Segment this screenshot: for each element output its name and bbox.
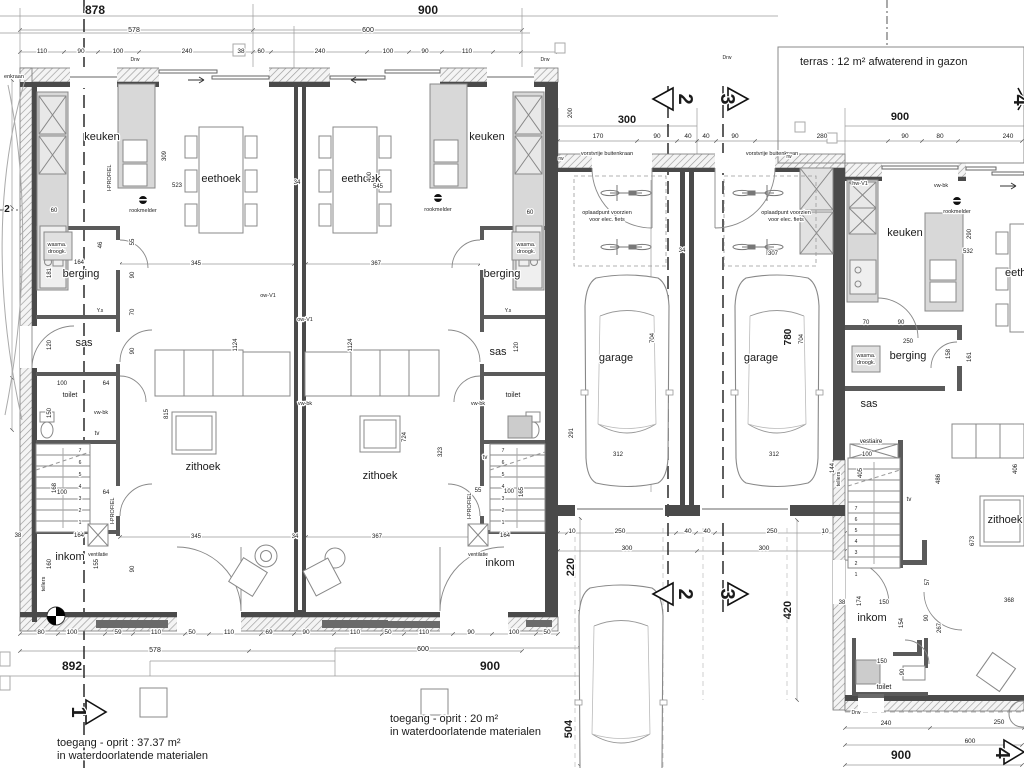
toegang-left-note-2: in waterdoorlatende materialen xyxy=(57,750,208,762)
plan-label: 240 xyxy=(315,48,326,55)
plan-label: ow-V1 xyxy=(297,317,313,323)
plan-label: 368 xyxy=(1004,598,1015,604)
plan-label: 100 xyxy=(57,490,68,496)
plan-label: 240 xyxy=(1003,133,1014,140)
plan-label: 300 xyxy=(622,545,633,552)
room-berging-2: berging xyxy=(484,268,521,280)
plan-label: 90 xyxy=(302,629,310,636)
dim-900-right: 900 xyxy=(891,748,911,762)
plan-label: vw-bk xyxy=(471,401,486,407)
toegang-mid-note-1: toegang - oprit : 20 m² xyxy=(390,713,499,725)
plan-label: 2 xyxy=(855,561,858,567)
plan-label: 2 xyxy=(79,508,82,514)
plan-label: 90 xyxy=(130,271,136,278)
plan-label: 100 xyxy=(113,48,124,55)
plan-label: 69 xyxy=(265,629,273,636)
plan-label: 200 xyxy=(568,107,574,118)
dim-892: 892 xyxy=(62,659,82,673)
vehicles xyxy=(574,176,823,768)
plan-label: 312 xyxy=(613,452,624,458)
plan-label: 40 xyxy=(703,528,711,535)
plan-label: 300 xyxy=(759,545,770,552)
floorplan-canvas: terras : 12 m² afwaterend in gazon toega… xyxy=(0,0,1024,768)
plan-label: 60 xyxy=(257,48,265,55)
plan-label: 161 xyxy=(967,351,973,362)
plan-label: 59 xyxy=(114,629,122,636)
room-eethoek-3: eethoek xyxy=(1005,267,1024,279)
plan-label: 80 xyxy=(37,629,45,636)
plan-label: 70 xyxy=(130,308,136,315)
plan-label: ventilatie xyxy=(88,552,108,558)
plan-label: 40 xyxy=(684,528,692,535)
plan-label: 323 xyxy=(438,446,444,457)
plan-label: ventilatie xyxy=(468,552,488,558)
plan-label: Drw xyxy=(852,710,861,716)
plan-label: 600 xyxy=(965,738,976,745)
plan-label: 250 xyxy=(994,719,1005,726)
plan-label: 90 xyxy=(130,347,136,354)
room-garage-1: garage xyxy=(599,352,633,364)
plan-label: droogk. xyxy=(857,360,876,366)
plan-label: 5 xyxy=(79,472,82,478)
plan-label: 155 xyxy=(94,558,100,569)
plan-label: enkraan xyxy=(4,74,24,80)
plan-label: 164 xyxy=(500,533,511,539)
plan-label: 815 xyxy=(164,408,170,419)
plan-label: 150 xyxy=(47,407,53,418)
plan-label: Drw xyxy=(131,57,140,63)
room-berging-1: berging xyxy=(63,268,100,280)
plan-label: 110 xyxy=(462,48,473,55)
plan-label: 60 xyxy=(51,208,58,214)
dim-878: 878 xyxy=(85,3,105,17)
room-sas-2: sas xyxy=(489,346,507,358)
plan-label: 38 xyxy=(839,600,846,606)
room-keuken-3: keuken xyxy=(887,227,922,239)
plan-label: 150 xyxy=(879,600,890,606)
plan-label: 4 xyxy=(855,539,858,545)
stairs-unit1 xyxy=(36,444,90,532)
plan-label: 70 xyxy=(863,320,870,326)
plan-label: 174 xyxy=(857,595,863,606)
plan-label: 110 xyxy=(350,629,361,636)
plan-label: wasma. xyxy=(856,353,876,359)
car-driveway xyxy=(575,585,667,768)
plan-label: 60 xyxy=(527,210,534,216)
plan-label: 3 xyxy=(855,550,858,556)
plan-label: 240 xyxy=(881,720,892,727)
plan-label: 345 xyxy=(191,534,202,540)
plan-label: 6 xyxy=(855,517,858,523)
plan-label: I-PROFIEL xyxy=(467,493,473,520)
plan-label: 50 xyxy=(188,629,196,636)
plan-label: vw-bk xyxy=(934,183,949,189)
plan-label: 7 xyxy=(502,448,505,454)
plan-label: 90 xyxy=(731,133,739,140)
plan-label: 144 xyxy=(830,462,836,473)
plan-label: 90 xyxy=(653,133,661,140)
plan-label: 164 xyxy=(74,260,85,266)
plan-label: 64 xyxy=(103,490,110,496)
plan-label: 578 xyxy=(149,647,161,654)
plan-label: 290 xyxy=(967,228,973,239)
plan-label: 38 xyxy=(237,48,245,55)
plan-label: 100 xyxy=(504,489,515,495)
plan-label: 100 xyxy=(509,629,520,636)
plan-label: 3 xyxy=(79,496,82,502)
plan-label: 367 xyxy=(372,534,383,540)
plan-label: 7 xyxy=(79,448,82,454)
car-garage-1 xyxy=(581,275,673,487)
plan-label: hw-V1 xyxy=(852,181,868,187)
plan-label: vw-bk xyxy=(94,410,109,416)
plan-label: 10 xyxy=(821,528,829,535)
plan-label: 90 xyxy=(898,320,905,326)
plan-label: 90 xyxy=(421,48,429,55)
plan-label: 2 xyxy=(502,508,505,514)
plan-label: 1 xyxy=(79,520,82,526)
plan-label: 50 xyxy=(543,629,551,636)
plan-label: oplaadpunt voorzien xyxy=(761,210,811,216)
plan-label: 110 xyxy=(419,629,430,636)
plan-label: 90 xyxy=(924,614,930,621)
plan-label: 267 xyxy=(937,622,943,633)
room-berging-3: berging xyxy=(890,350,927,362)
plan-label: tv xyxy=(483,455,488,461)
plan-label: 90 xyxy=(901,133,909,140)
plan-label: droogk. xyxy=(517,249,536,255)
plan-label: 250 xyxy=(903,339,914,345)
room-zithoek-2: zithoek xyxy=(363,470,398,482)
plan-label: 312 xyxy=(769,452,780,458)
plan-label: 100 xyxy=(383,48,394,55)
section-2b: 2 xyxy=(674,588,696,599)
plan-label: ow-V1 xyxy=(260,293,276,299)
section-2: 2 xyxy=(674,93,696,104)
bike-icon xyxy=(601,185,651,201)
plan-label: 400 xyxy=(367,171,373,182)
plan-label: rw xyxy=(786,154,792,160)
plan-label: 40 xyxy=(684,133,692,140)
dim-900-top: 900 xyxy=(418,3,438,17)
plan-label: 600 xyxy=(417,646,429,653)
plan-label: 38 xyxy=(15,533,22,539)
room-eethoek-1: eethoek xyxy=(201,173,241,185)
plan-label: 90 xyxy=(900,668,906,675)
plan-label: Y.s xyxy=(505,308,512,314)
plan-label: 724 xyxy=(402,431,408,442)
plan-label: tellers xyxy=(836,471,842,486)
plan-label: 6 xyxy=(79,460,82,466)
plan-label: rw xyxy=(558,156,564,162)
plan-label: 154 xyxy=(899,617,905,628)
plan-label: 2 xyxy=(4,204,10,215)
room-keuken-1: keuken xyxy=(84,131,119,143)
plan-label: 110 xyxy=(224,629,235,636)
plan-label: 10 xyxy=(568,528,576,535)
section-4: 4 xyxy=(1009,94,1024,106)
plan-label: 165 xyxy=(519,486,525,497)
plan-label: vestiaire xyxy=(860,439,883,445)
plan-label: 120 xyxy=(514,341,520,352)
plan-label: 100 xyxy=(862,452,873,458)
plan-label: droogk. xyxy=(48,249,67,255)
plan-label: 5 xyxy=(855,528,858,534)
toegang-left-note-1: toegang - oprit : 37.37 m² xyxy=(57,737,181,749)
plan-label: 405 xyxy=(858,467,864,478)
rookmelder-label: rookmelder xyxy=(943,209,971,215)
plan-label: 170 xyxy=(593,133,604,140)
plan-label: 34 xyxy=(294,180,301,186)
plan-label: Drw xyxy=(541,57,550,63)
plan-label: 4 xyxy=(79,484,82,490)
plan-label: 100 xyxy=(67,629,78,636)
plan-label: vw-bk xyxy=(298,401,313,407)
plan-label: I-PROFIEL xyxy=(107,165,113,192)
dim-900-garage: 900 xyxy=(891,111,909,123)
plan-label: 100 xyxy=(57,381,68,387)
room-toilet-3: toilet xyxy=(877,684,892,691)
plan-label: voor elec. fiets xyxy=(768,217,804,223)
plan-label: 406 xyxy=(1013,463,1019,474)
room-inkom-1: inkom xyxy=(55,551,84,563)
plan-label: 34 xyxy=(292,534,299,540)
plan-label: oplaadpunt voorzien xyxy=(582,210,632,216)
rookmelder-label: rookmelder xyxy=(424,207,452,213)
plan-label: Y.s xyxy=(97,308,104,314)
plan-label: 600 xyxy=(362,27,374,34)
plan-label: 120 xyxy=(47,339,53,350)
plan-label: 250 xyxy=(767,528,778,535)
plan-label: voor elec. fiets xyxy=(589,217,625,223)
plan-label: 57 xyxy=(925,578,931,585)
plan-label: 55 xyxy=(475,488,482,494)
plan-label: 160 xyxy=(47,558,53,569)
plan-label: 291 xyxy=(569,427,575,438)
plan-label: 1 xyxy=(502,520,505,526)
plan-label: 110 xyxy=(151,629,162,636)
plan-label: tv xyxy=(907,497,912,503)
plan-label: 532 xyxy=(963,249,974,255)
floor-plan-page: terras : 12 m² afwaterend in gazon toega… xyxy=(0,0,1024,768)
plan-label: 1124 xyxy=(348,338,354,352)
plan-label: 280 xyxy=(817,133,828,140)
plan-label: 110 xyxy=(37,48,48,55)
dim-420: 420 xyxy=(782,601,794,619)
plan-label: 3 xyxy=(502,496,505,502)
plan-label: 1 xyxy=(855,572,858,578)
section-3b: 3 xyxy=(716,588,738,599)
dim-504: 504 xyxy=(563,719,575,738)
terras-note: terras : 12 m² afwaterend in gazon xyxy=(800,56,968,68)
plan-label: 345 xyxy=(191,261,202,267)
room-sas-3: sas xyxy=(860,398,878,410)
reference-symbol xyxy=(47,607,65,625)
plan-label: 64 xyxy=(103,381,110,387)
stairs-unit2 xyxy=(490,444,545,532)
bike-icon xyxy=(601,239,651,255)
section-3: 3 xyxy=(716,93,738,104)
plan-label: 250 xyxy=(615,528,626,535)
room-garage-2: garage xyxy=(744,352,778,364)
plan-label: 6 xyxy=(502,460,505,466)
plan-label: 367 xyxy=(371,261,382,267)
plan-label: 90 xyxy=(77,48,85,55)
room-inkom-3: inkom xyxy=(857,612,886,624)
room-toilet-2: toilet xyxy=(506,392,521,399)
plan-label: 164 xyxy=(74,533,85,539)
plan-label: 704 xyxy=(650,332,656,343)
plan-label: 40 xyxy=(702,133,710,140)
plan-label: 90 xyxy=(467,629,475,636)
plan-label: 486 xyxy=(936,473,942,484)
toegang-mid-note-2: in waterdoorlatende materialen xyxy=(390,726,541,738)
room-inkom-2: inkom xyxy=(485,557,514,569)
buitenkraan-label: vorstvrije buitenkraan xyxy=(581,151,633,157)
plan-label: 46 xyxy=(98,241,104,248)
dim-900-bottom: 900 xyxy=(480,659,500,673)
room-zithoek-1: zithoek xyxy=(186,461,221,473)
plan-label: 578 xyxy=(128,27,140,34)
section-4b: 4 xyxy=(991,747,1013,759)
dim-780: 780 xyxy=(783,328,794,345)
plan-label: 673 xyxy=(970,535,976,546)
plan-label: tellers xyxy=(41,576,47,591)
room-zithoek-3: zithoek xyxy=(988,514,1023,526)
dim-220: 220 xyxy=(565,558,577,576)
plan-label: 307 xyxy=(768,251,779,257)
room-keuken-2: keuken xyxy=(469,131,504,143)
plan-label: 1124 xyxy=(233,338,239,352)
dim-300: 300 xyxy=(618,114,636,126)
section-1: 1 xyxy=(67,706,89,717)
plan-label: 523 xyxy=(172,183,183,189)
plan-label: 90 xyxy=(130,565,136,572)
plan-label: Drw xyxy=(723,55,732,61)
plan-label: 50 xyxy=(384,629,392,636)
room-sas-1: sas xyxy=(75,337,93,349)
plan-label: 80 xyxy=(936,133,944,140)
plan-label: 704 xyxy=(799,333,805,344)
plan-label: 34 xyxy=(679,248,686,254)
plan-label: wasma. xyxy=(516,242,536,248)
plan-label: 158 xyxy=(946,348,952,359)
plan-label: 309 xyxy=(162,150,168,161)
rookmelder-label: rookmelder xyxy=(129,208,157,214)
plan-label: 7 xyxy=(855,506,858,512)
bike-icon xyxy=(733,185,783,201)
room-toilet-1: toilet xyxy=(63,392,78,399)
plan-label: 150 xyxy=(877,659,888,665)
plan-label: I-PROFIEL xyxy=(110,498,116,525)
plan-label: wasma. xyxy=(47,242,67,248)
plan-label: 181 xyxy=(47,267,53,278)
plan-label: 240 xyxy=(182,48,193,55)
plan-label: 55 xyxy=(130,238,136,245)
plan-label: 545 xyxy=(373,184,384,190)
plan-label: tv xyxy=(95,431,100,437)
plan-label: 5 xyxy=(502,472,505,478)
